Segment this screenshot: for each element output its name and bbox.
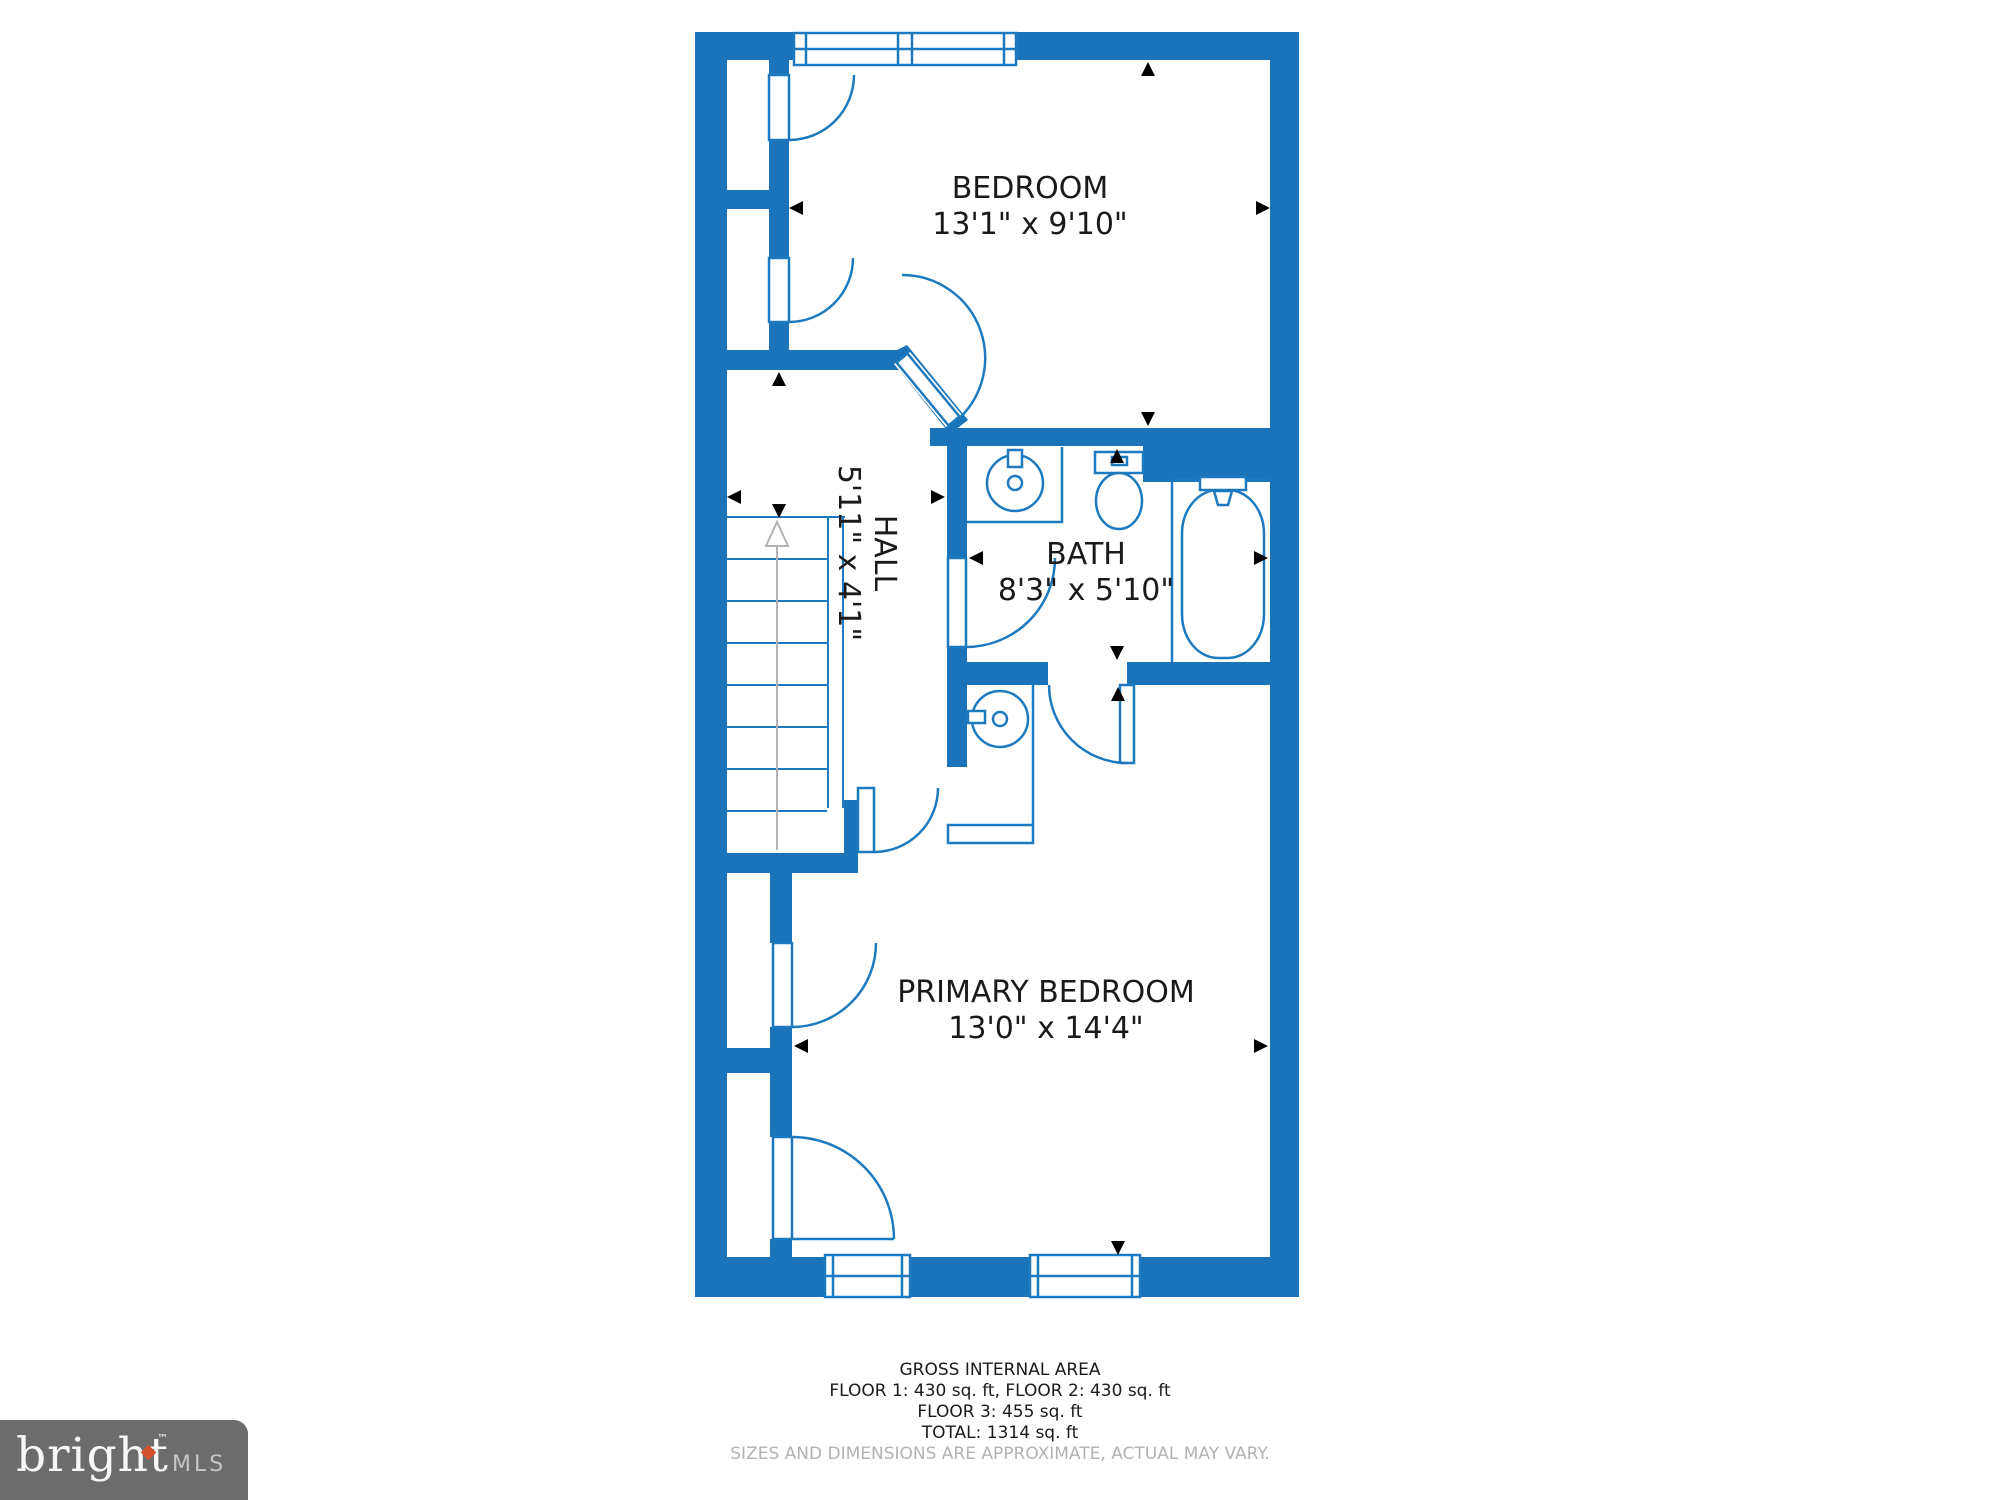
door-leaf xyxy=(858,788,874,852)
bedroom-dimensions: 13'1" x 9'10" xyxy=(932,207,1127,243)
tub-shower-head-icon xyxy=(1214,491,1232,505)
wall xyxy=(769,60,789,75)
dimension-arrow-icon xyxy=(1111,1241,1125,1255)
wall xyxy=(727,350,901,370)
wall xyxy=(727,853,858,873)
dimension-arrow-icon xyxy=(794,1039,808,1053)
wall xyxy=(770,1239,792,1257)
dimension-arrow-icon xyxy=(1110,646,1124,660)
area-floors-1-2: FLOOR 1: 430 sq. ft, FLOOR 2: 430 sq. ft xyxy=(700,1381,1300,1402)
bath-fixtures xyxy=(948,447,1270,843)
primary-bedroom-name: PRIMARY BEDROOM xyxy=(897,975,1195,1011)
door-arc xyxy=(874,788,938,852)
hall-name: HALL xyxy=(866,465,902,641)
hall-label: HALL 5'11" x 4'1" xyxy=(830,465,902,641)
wall xyxy=(769,140,789,258)
wall xyxy=(770,1027,792,1137)
bath-dimensions: 8'3" x 5'10" xyxy=(998,573,1174,609)
wall-outer-bottom xyxy=(695,1257,1299,1297)
primary-bedroom-dimensions: 13'0" x 14'4" xyxy=(897,1011,1195,1047)
wall xyxy=(947,662,1048,685)
dimension-arrow-icon xyxy=(772,504,786,518)
wall xyxy=(727,1048,792,1073)
wall xyxy=(727,190,769,209)
wall-outer-right xyxy=(1270,32,1299,1297)
floor-plan-page: BEDROOM 13'1" x 9'10" HALL 5'11" x 4'1" … xyxy=(0,0,2000,1500)
bedroom-label: BEDROOM 13'1" x 9'10" xyxy=(932,171,1127,243)
door-leaf xyxy=(769,258,789,322)
bath-name: BATH xyxy=(998,537,1174,573)
wall xyxy=(769,322,789,350)
bedroom-name: BEDROOM xyxy=(932,171,1127,207)
dimension-arrow-icon xyxy=(1254,551,1268,565)
dimension-arrow-icon xyxy=(1254,1039,1268,1053)
dimension-arrow-icon xyxy=(931,490,945,504)
toilet-bowl-icon xyxy=(1096,473,1142,529)
wall xyxy=(844,800,858,853)
primary-bedroom-label: PRIMARY BEDROOM 13'0" x 14'4" xyxy=(897,975,1195,1047)
dimension-arrow-icon xyxy=(727,490,741,504)
dimension-arrow-icon xyxy=(969,551,983,565)
door-leaf xyxy=(773,1137,792,1239)
door-leaf xyxy=(773,943,792,1027)
door-leaf xyxy=(948,558,966,647)
area-floor-3: FLOOR 3: 455 sq. ft xyxy=(700,1402,1300,1423)
wall xyxy=(1127,662,1270,685)
door-leaf xyxy=(769,75,789,140)
stairs xyxy=(727,517,845,811)
wall xyxy=(947,428,967,558)
bright-mls-logo: bright ™ MLS xyxy=(0,1420,248,1500)
bathtub-icon xyxy=(1182,490,1264,658)
dimension-arrow-icon xyxy=(789,201,803,215)
area-total: TOTAL: 1314 sq. ft xyxy=(700,1423,1300,1444)
hall-dimensions: 5'11" x 4'1" xyxy=(830,465,866,641)
wall xyxy=(930,428,1270,446)
door-arc xyxy=(792,943,876,1027)
area-disclaimer: SIZES AND DIMENSIONS ARE APPROXIMATE, AC… xyxy=(700,1444,1300,1465)
logo-trademark: ™ xyxy=(157,1432,168,1445)
dimension-arrow-icon xyxy=(1256,201,1270,215)
wall xyxy=(770,873,792,943)
sink-drain-icon xyxy=(1008,476,1022,490)
vanity-counter xyxy=(948,825,1033,843)
logo-suffix-text: MLS xyxy=(172,1452,226,1477)
door-arc xyxy=(789,258,853,322)
sink-faucet-icon xyxy=(968,711,985,723)
bath-label: BATH 8'3" x 5'10" xyxy=(998,537,1174,609)
tub-faucet-icon xyxy=(1200,477,1246,490)
sink-drain-icon xyxy=(993,712,1007,726)
door-arc xyxy=(792,1137,894,1239)
dimension-arrow-icon xyxy=(1141,412,1155,426)
dimension-arrow-icon xyxy=(1141,62,1155,76)
door-leaf xyxy=(897,354,960,426)
dimension-arrow-icon xyxy=(772,372,786,386)
area-summary: GROSS INTERNAL AREA FLOOR 1: 430 sq. ft,… xyxy=(700,1360,1300,1465)
wall-outer-left xyxy=(695,32,727,1297)
area-summary-heading: GROSS INTERNAL AREA xyxy=(700,1360,1300,1381)
sink-faucet-icon xyxy=(1008,450,1022,467)
door-arc xyxy=(789,75,854,140)
